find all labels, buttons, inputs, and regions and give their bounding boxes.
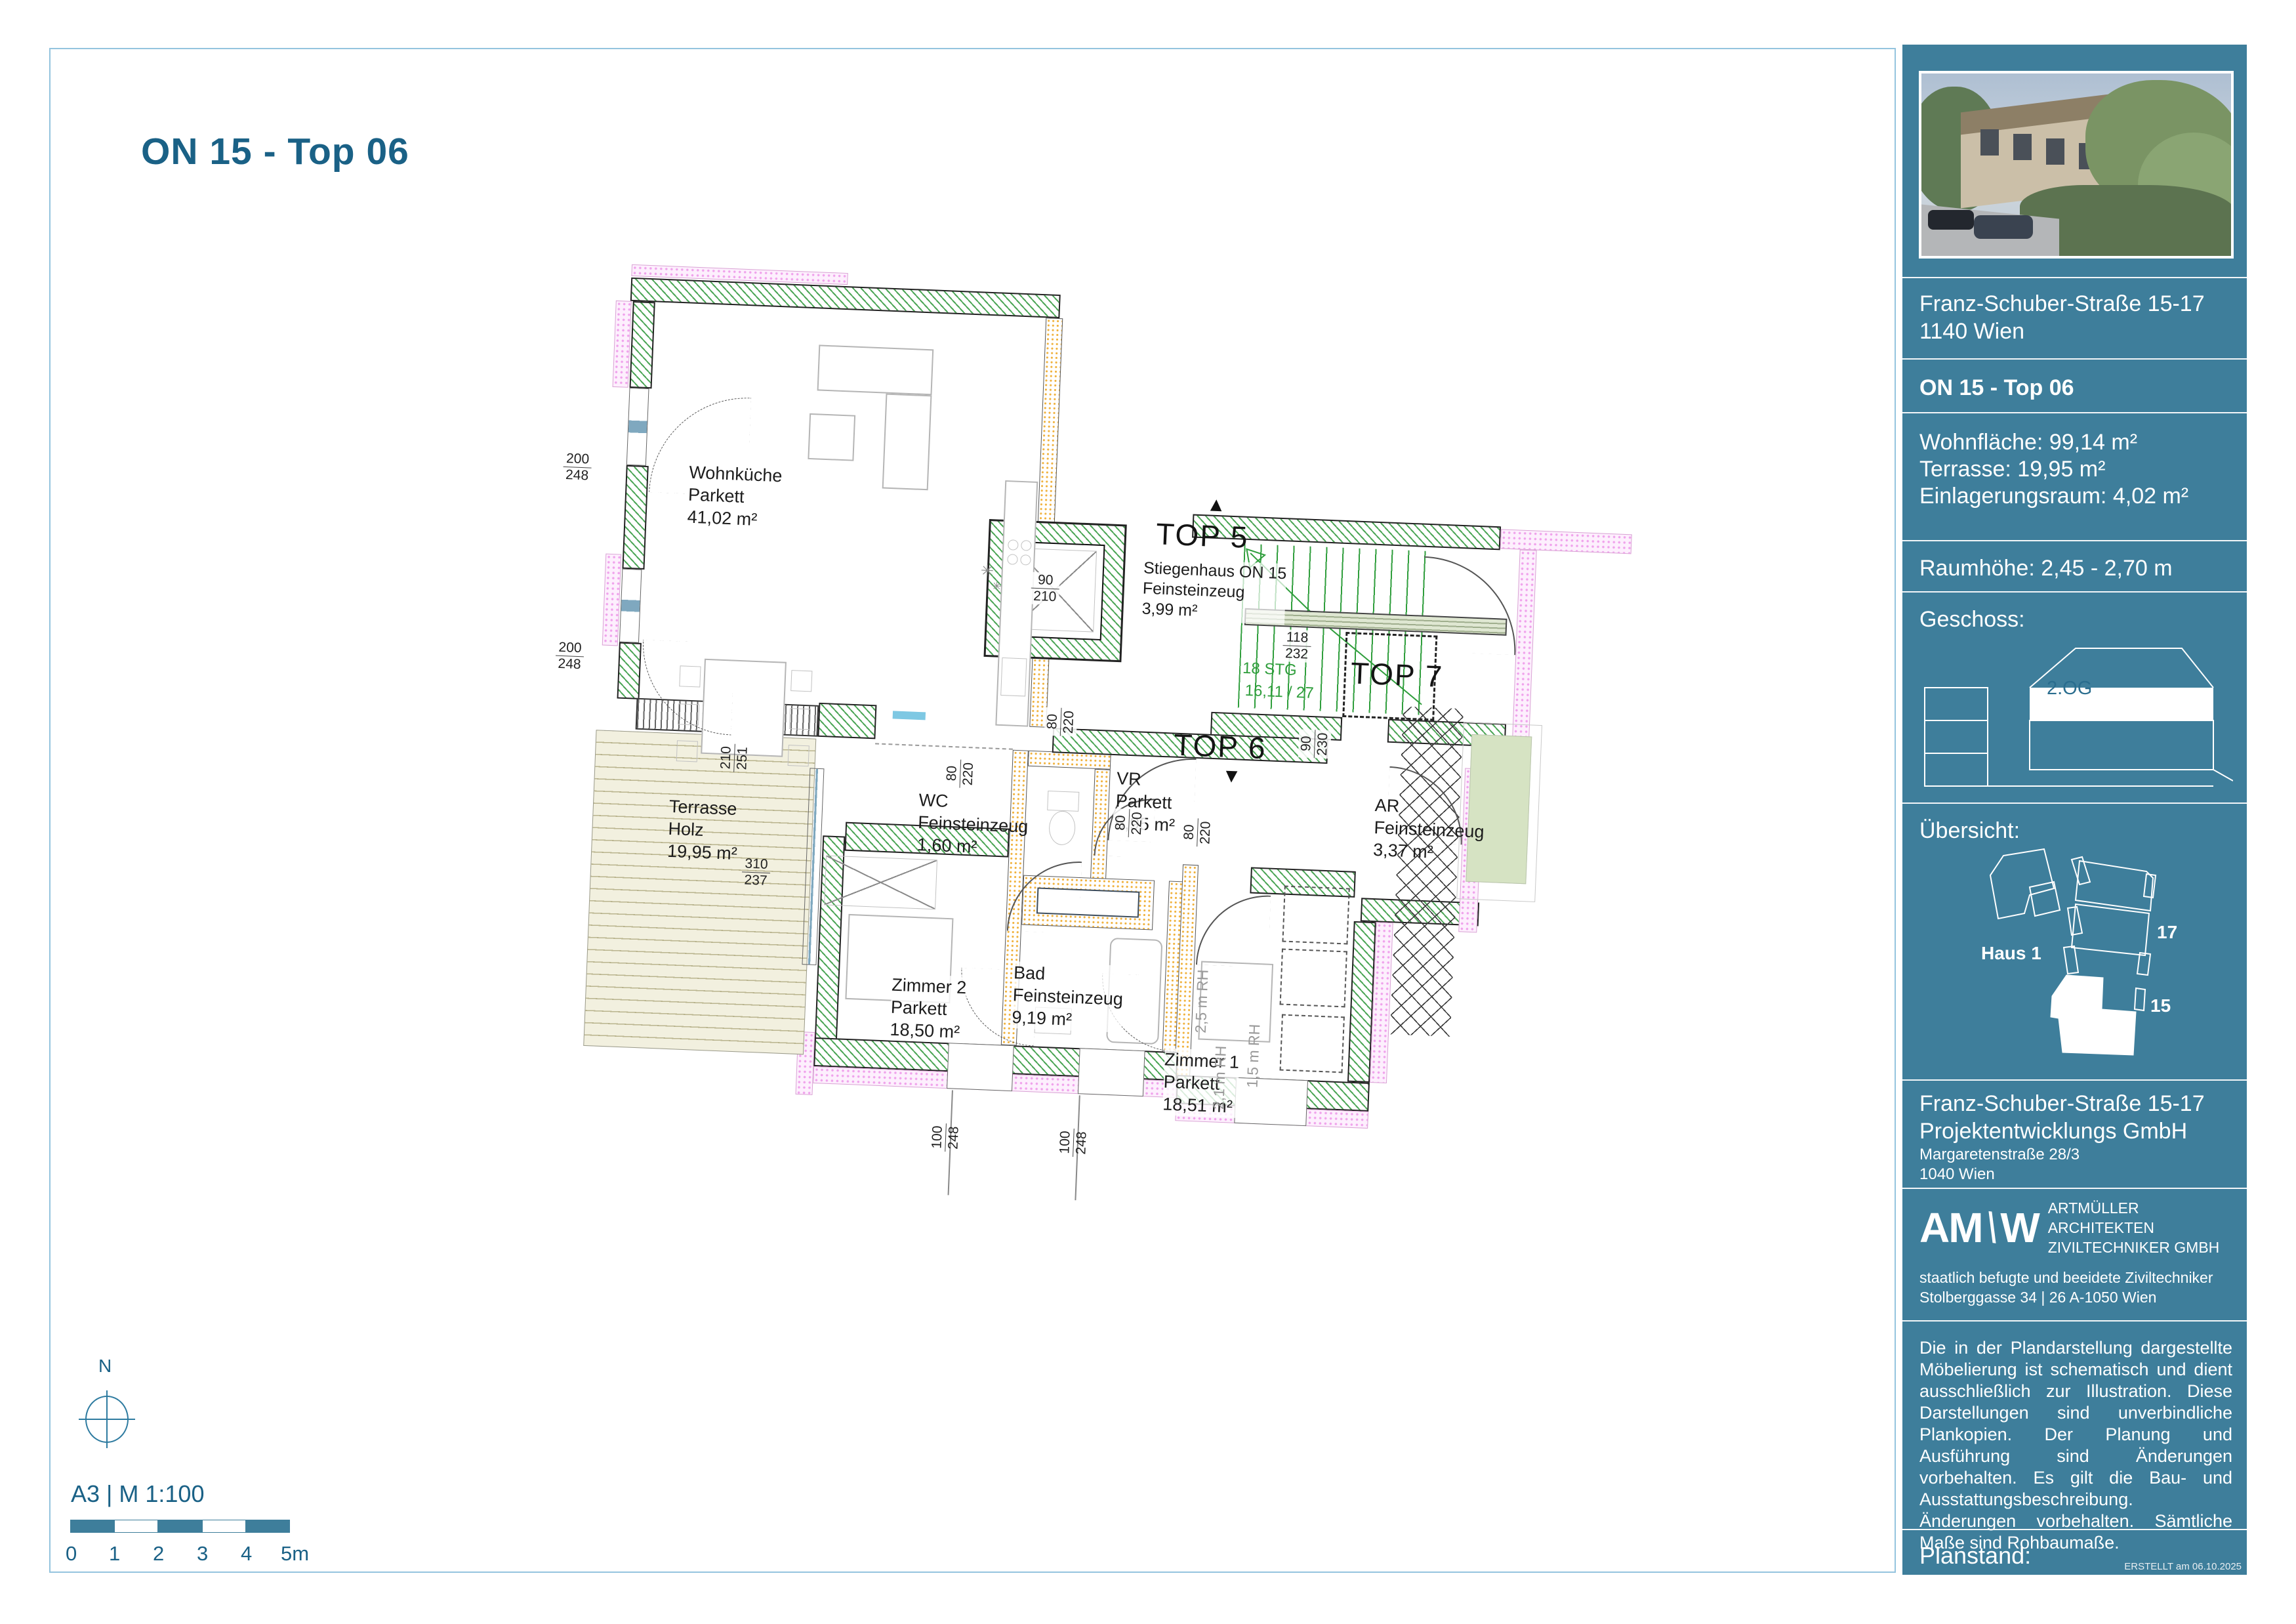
dim-80-220: 80220 xyxy=(944,759,977,789)
sidebar-unit: ON 15 - Top 06 xyxy=(1902,358,2247,412)
metric-row: Wohnfläche: 99,14 m² xyxy=(1919,429,2232,456)
room-name: Wohnküche xyxy=(689,461,783,488)
address-line2: 1140 Wien xyxy=(1919,318,2232,345)
wardrobe-dashed-2 xyxy=(1280,948,1347,1007)
room-name: Terrasse xyxy=(668,795,739,820)
scale-tick: 3 xyxy=(197,1542,208,1566)
neighbor-terrace-hatch xyxy=(1390,707,1464,1037)
photo-window xyxy=(1980,129,1999,156)
unit-label: ON 15 - Top 06 xyxy=(1919,375,2232,401)
architect-name: ARTMÜLLER ARCHITEKTEN ZIVILTECHNIKER GMB… xyxy=(2048,1198,2232,1257)
wall-left-pink-1 xyxy=(613,301,632,388)
dim-200-248: 200248 xyxy=(555,640,584,673)
overview-15-label: 15 xyxy=(2150,995,2171,1016)
overview-haus1-label: Haus 1 xyxy=(1981,943,2041,964)
wall-left-pink-2 xyxy=(602,554,622,646)
dim-310-237: 310237 xyxy=(741,856,771,889)
snowflake-icon: ✳ xyxy=(980,562,994,581)
cert-line1: staatlich befugte und beeidete Ziviltech… xyxy=(1919,1268,2232,1287)
metric-value: 19,95 m² xyxy=(2017,457,2105,482)
scalebar-seg xyxy=(202,1520,246,1533)
architect-line2: ZIVILTECHNIKER GMBH xyxy=(2048,1238,2232,1257)
page-title: ON 15 - Top 06 xyxy=(141,130,409,173)
dim-90-230: 90230 xyxy=(1298,729,1332,759)
format-scale-label: A3 | M 1:100 xyxy=(71,1480,204,1508)
photo-car xyxy=(1974,215,2033,239)
sofa-side xyxy=(882,394,932,491)
floor-diagram xyxy=(1919,642,2233,793)
wardrobe-dashed-1 xyxy=(1282,886,1349,945)
metric-label: Wohnfläche: xyxy=(1919,430,2043,455)
section-dash-line xyxy=(875,743,1013,749)
metric-value: 99,14 m² xyxy=(2049,430,2137,455)
scalebar-seg xyxy=(114,1520,158,1533)
sidebar-room-height: Raumhöhe: 2,45 - 2,70 m xyxy=(1902,540,2247,591)
wall-corner xyxy=(817,703,876,739)
dim-118-232: 118232 xyxy=(1282,629,1312,663)
metric-label: Einlagerungsraum: xyxy=(1919,484,2106,509)
sidebar-floor-section: Geschoss: 2.OG xyxy=(1902,591,2247,802)
room-name: Zimmer 2 xyxy=(892,974,967,999)
snowflake-icon: ✳ xyxy=(991,579,1002,594)
wall-left-c xyxy=(617,642,642,699)
developer-line4: 1040 Wien xyxy=(1919,1165,2232,1184)
plan-sheet: { "page": { "title": "ON 15 - Top 06" },… xyxy=(0,0,2296,1624)
dim-90-210: 90210 xyxy=(1031,572,1060,606)
created-stamp: ERSTELLT am 06.10.2025 xyxy=(2124,1561,2242,1572)
wall-left-a xyxy=(630,301,655,388)
photo-window xyxy=(2013,134,2032,160)
label-top5: TOP 5 xyxy=(1155,516,1249,555)
room-height: Raumhöhe: 2,45 - 2,70 m xyxy=(1919,556,2232,581)
sofa-back xyxy=(817,344,934,395)
logo-am: AM xyxy=(1919,1203,1982,1252)
wardrobe-dashed-3 xyxy=(1280,1014,1345,1073)
room-area: 3,37 m² xyxy=(1373,839,1484,865)
metric-value: 4,02 m² xyxy=(2113,484,2188,509)
photo-car xyxy=(1928,210,1974,230)
rh-label-21: 2,1 m RH xyxy=(1210,1045,1230,1110)
metric-row: Terrasse: 19,95 m² xyxy=(1919,456,2232,483)
floor-section-label: Geschoss: xyxy=(1919,607,2232,633)
architect-cert: staatlich befugte und beeidete Ziviltech… xyxy=(1919,1268,2232,1307)
room-label-stiegenhaus: Stiegenhaus ON 15 Feinsteinzeug 3,99 m² xyxy=(1141,558,1287,625)
room-area: 9,19 m² xyxy=(1012,1006,1122,1033)
sidebar-disclaimer: Die in der Plandarstellung dargestellte … xyxy=(1902,1320,2247,1529)
label-top6: TOP 6 xyxy=(1173,727,1267,766)
room-area: 18,50 m² xyxy=(890,1018,965,1044)
chair xyxy=(789,708,811,730)
chair xyxy=(790,670,812,692)
scale-tick: 2 xyxy=(153,1542,164,1566)
room-label-wohnkueche: Wohnküche Parkett 41,02 m² xyxy=(687,461,783,532)
scale-tick: 5m xyxy=(281,1542,309,1566)
scalebar-seg xyxy=(158,1520,202,1533)
dim-80-220: 80220 xyxy=(1181,818,1214,847)
floor-highlight-label: 2.OG xyxy=(2047,678,2092,699)
overview-17-label: 17 xyxy=(2157,922,2177,943)
photo-window xyxy=(2046,138,2064,165)
rh-label-25: 2,5 m RH xyxy=(1192,969,1212,1033)
stair-steps-note: 18 STG xyxy=(1242,659,1298,680)
dim-80-220: 80220 xyxy=(1044,707,1078,737)
coffee-table xyxy=(808,413,855,461)
developer-line1: Franz-Schuber-Straße 15-17 xyxy=(1919,1090,2232,1117)
architect-line1: ARTMÜLLER ARCHITEKTEN xyxy=(2048,1198,2232,1238)
sidebar-developer: Franz-Schuber-Straße 15-17 Projektentwic… xyxy=(1902,1079,2247,1188)
terrace-deck xyxy=(583,730,816,1054)
stair-rise-note: 16,11 / 27 xyxy=(1244,682,1314,703)
sidebar-architect: AM\W ARTMÜLLER ARCHITEKTEN ZIVILTECHNIKE… xyxy=(1902,1188,2247,1320)
toilet-bowl xyxy=(1048,810,1076,846)
room-label-terrasse: Terrasse Holz 19,95 m² xyxy=(667,795,740,865)
chair xyxy=(788,745,810,766)
site-plan xyxy=(1919,848,2233,1064)
toilet-tank xyxy=(1047,791,1079,812)
dim-210-251: 210251 xyxy=(718,743,751,773)
scale-tick: 1 xyxy=(109,1542,120,1566)
metric-label: Terrasse: xyxy=(1919,457,2011,482)
logo-w: W xyxy=(2000,1203,2038,1252)
room-floor: Parkett xyxy=(890,996,966,1022)
room-area: 19,95 m² xyxy=(667,840,738,865)
window-bottom-1 xyxy=(947,1043,1014,1091)
overview-label: Übersicht: xyxy=(1919,818,2232,844)
sidebar-overview: Übersicht: Haus 1 17 15 xyxy=(1902,802,2247,1079)
door-arc-zimmer1 xyxy=(1196,892,1271,967)
room-label-wc: WC Feinsteinzeug 1,60 m² xyxy=(916,789,1029,860)
room-floor: Parkett xyxy=(687,484,781,510)
architect-logo: AM\W xyxy=(1919,1203,2039,1252)
rh-label-15: 1,5 m RH xyxy=(1243,1024,1263,1088)
sidebar-address: Franz-Schuber-Straße 15-17 1140 Wien xyxy=(1902,277,2247,358)
address-line1: Franz-Schuber-Straße 15-17 xyxy=(1919,290,2232,318)
room-floor: Holz xyxy=(668,818,739,843)
developer-line2: Projektentwicklungs GmbH xyxy=(1919,1117,2232,1145)
wall-left-b xyxy=(622,465,648,570)
info-sidebar: Franz-Schuber-Straße 15-17 1140 Wien ON … xyxy=(1902,45,2247,1575)
direction-down-icon: ▼ xyxy=(1221,766,1242,787)
window-left-1 xyxy=(626,388,649,466)
window-bottom-2 xyxy=(1078,1048,1145,1096)
dim-80-220: 80220 xyxy=(1113,808,1146,838)
wardrobe-zimmer2 xyxy=(824,855,937,909)
dim-200-248: 200248 xyxy=(563,451,592,484)
room-label-zimmer2: Zimmer 2 Parkett 18,50 m² xyxy=(890,974,967,1043)
chair xyxy=(676,740,698,762)
room-name: VR xyxy=(1117,767,1178,792)
room-area: 1,60 m² xyxy=(916,833,1027,860)
room-area: 41,02 m² xyxy=(687,506,781,532)
sidebar-metrics: Wohnfläche: 99,14 m² Terrasse: 19,95 m² … xyxy=(1902,412,2247,540)
north-arrow-icon xyxy=(79,1419,135,1420)
label-top7: TOP 7 xyxy=(1350,655,1444,694)
scale-tick: 4 xyxy=(241,1542,252,1566)
scalebar-seg xyxy=(70,1520,114,1533)
building-photo xyxy=(1919,71,2234,259)
sill-marker xyxy=(893,711,926,720)
metric-row: Einlagerungsraum: 4,02 m² xyxy=(1919,483,2232,510)
cert-line2: Stolberggasse 34 | 26 A-1050 Wien xyxy=(1919,1287,2232,1307)
north-label: N xyxy=(98,1356,112,1377)
dim-100-248: 100248 xyxy=(1057,1128,1090,1157)
kitchen-sink xyxy=(1000,657,1027,696)
direction-up-icon: ▲ xyxy=(1206,495,1226,515)
room-label-ar: AR Feinsteinzeug 3,37 m² xyxy=(1373,794,1486,865)
window-left-2 xyxy=(619,569,642,643)
dim-100-248: 100248 xyxy=(929,1123,962,1152)
room-label-bad: Bad Feinsteinzeug 9,19 m² xyxy=(1012,961,1124,1033)
floor-plan: Wohnküche Parkett 41,02 m² Terrasse Holz… xyxy=(576,274,1673,1209)
logo-slash: \ xyxy=(1982,1203,1999,1252)
scale-tick: 0 xyxy=(66,1542,77,1566)
scalebar-seg xyxy=(246,1520,290,1533)
developer-line3: Margaretenstraße 28/3 xyxy=(1919,1145,2232,1165)
